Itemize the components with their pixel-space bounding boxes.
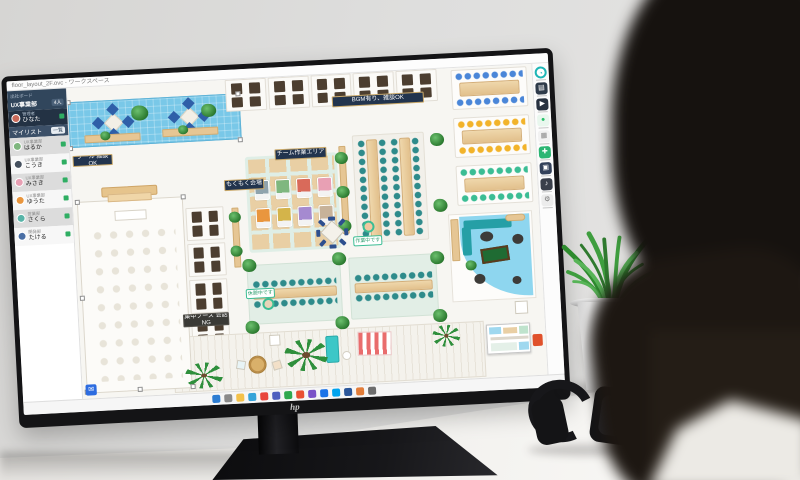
plant-icon <box>433 199 448 213</box>
avatar <box>16 214 25 223</box>
icon-caption <box>542 191 552 193</box>
beanbag <box>474 274 486 285</box>
chair <box>211 261 221 273</box>
selection-handle[interactable] <box>181 194 186 199</box>
status-icon <box>62 159 67 164</box>
plant-icon <box>430 133 445 147</box>
avatar-card[interactable] <box>276 207 292 228</box>
photo-scene: floor_layout_2F.ovc - ワークスペース 出社ボード UX事業… <box>0 0 800 480</box>
pool-area[interactable] <box>68 93 242 148</box>
palm-plant-icon <box>283 338 329 372</box>
chair <box>210 247 220 259</box>
plant-icon <box>131 105 149 121</box>
striped-mat <box>357 331 391 356</box>
chair <box>402 74 413 85</box>
layout-icon[interactable]: ▦ <box>538 130 551 143</box>
plant-icon <box>201 103 217 117</box>
chair <box>317 92 328 103</box>
plugin-icon[interactable]: ✚ <box>539 146 552 159</box>
status-icon <box>64 213 69 218</box>
status-available-icon[interactable]: ● <box>537 114 550 127</box>
sofa <box>462 227 472 255</box>
mylist-label: マイリスト <box>12 126 42 137</box>
announcement-icon[interactable]: ▤ <box>535 82 548 95</box>
icon-caption <box>539 127 549 129</box>
monitor: floor_layout_2F.ovc - ワークスペース 出社ボード UX事業… <box>1 48 571 428</box>
selection-handle[interactable] <box>235 91 240 96</box>
chrome-icon[interactable] <box>260 392 268 400</box>
patio-chair <box>272 360 283 371</box>
chair <box>209 225 219 237</box>
minimap-block <box>519 341 529 350</box>
desk-bank <box>225 78 267 112</box>
screen: floor_layout_2F.ovc - ワークスペース 出社ボード UX事業… <box>6 53 565 415</box>
planter-bench <box>162 126 218 137</box>
plant-pot <box>572 302 648 390</box>
podium <box>114 209 146 221</box>
chair <box>274 94 285 105</box>
chair <box>249 82 260 93</box>
edge-icon[interactable] <box>248 393 256 401</box>
teams-icon[interactable] <box>272 392 280 400</box>
minimap-block <box>519 325 528 333</box>
music-icon[interactable]: ♪ <box>540 178 553 191</box>
selection-handle[interactable] <box>75 200 80 205</box>
chair <box>249 96 260 107</box>
status-icon <box>59 114 64 119</box>
avatar <box>14 178 23 187</box>
user-name-tag: 休憩中です <box>246 288 275 300</box>
chair <box>195 284 205 296</box>
selection-handle[interactable] <box>238 137 243 142</box>
avatar-card[interactable] <box>275 179 291 200</box>
pinned-user-name: ひなた <box>22 116 57 124</box>
chair <box>232 97 243 108</box>
selection-handle[interactable] <box>191 384 196 389</box>
lounge-area[interactable] <box>448 210 536 302</box>
chair <box>212 283 222 295</box>
audience-seats <box>91 226 183 382</box>
word-icon[interactable] <box>344 388 352 396</box>
icon-caption <box>539 143 549 145</box>
powerpoint-icon[interactable] <box>296 390 304 398</box>
status-icon <box>61 141 66 146</box>
sidebar-subtitle: UX事業部 <box>10 99 37 109</box>
desk-bank <box>185 206 225 241</box>
search-icon[interactable] <box>224 394 232 402</box>
chair <box>292 93 303 104</box>
calendar-icon[interactable]: ▣ <box>539 162 552 175</box>
chair <box>334 78 345 89</box>
table-group-bottomright[interactable] <box>348 253 439 320</box>
planter-bench <box>84 132 140 143</box>
member-count-badge: 4人 <box>52 98 64 106</box>
list-all-button[interactable]: 一覧 <box>51 126 65 134</box>
sidebar-user-list: UX事業部はるかUX事業部こうきUX事業部みさきUX事業部ゆうた営業部さくら開発… <box>9 135 74 246</box>
center-diamond-table[interactable] <box>320 220 345 245</box>
avatar-card[interactable] <box>297 206 313 227</box>
photos-icon[interactable] <box>356 387 364 395</box>
desk-bank <box>267 76 309 110</box>
focus-sign[interactable]: 集中ブース 会話NG <box>183 312 230 327</box>
meeting-table-blue[interactable] <box>450 66 528 110</box>
status-icon <box>65 231 70 236</box>
icon-caption <box>543 207 553 209</box>
chair <box>196 298 206 310</box>
mid-sign[interactable]: もくもく会場 <box>224 178 265 191</box>
user-row[interactable]: 開発部たける <box>14 225 74 246</box>
pool-sign[interactable]: プール 雑談OK <box>72 154 113 167</box>
icon-caption <box>537 95 547 97</box>
settings-icon[interactable]: ⚙ <box>541 194 554 207</box>
plant-icon <box>430 251 445 265</box>
auditorium[interactable] <box>77 196 193 393</box>
minimap-block <box>490 335 528 340</box>
chair <box>359 76 370 87</box>
chair <box>316 79 327 90</box>
avatar-card[interactable] <box>317 177 333 198</box>
chair <box>194 262 204 274</box>
avatar <box>15 196 24 205</box>
hp-logo: hp <box>290 402 300 412</box>
minimap-block <box>491 342 517 351</box>
side-table <box>342 351 351 360</box>
icon-caption <box>536 79 546 81</box>
stage <box>107 192 151 202</box>
mail-icon[interactable] <box>320 389 328 397</box>
desk-bank <box>189 279 229 314</box>
minimap[interactable] <box>486 322 532 354</box>
selection-handle[interactable] <box>67 100 71 105</box>
excel-icon[interactable] <box>284 391 292 399</box>
chair <box>291 80 302 91</box>
status-icon <box>63 177 68 182</box>
enter-room-icon[interactable]: ▶ <box>536 98 549 111</box>
chair <box>192 211 202 223</box>
icon-caption <box>540 159 550 161</box>
side-table <box>515 300 529 314</box>
minimap-block <box>489 327 501 335</box>
chair <box>377 75 388 86</box>
chair <box>420 73 431 84</box>
start-icon[interactable] <box>212 395 220 403</box>
chair <box>213 297 223 309</box>
meeting-table-yellow[interactable] <box>453 114 531 158</box>
user-name-tag: 作業中です <box>353 235 382 247</box>
avatar-card[interactable] <box>296 178 312 199</box>
plant-icon <box>230 245 243 257</box>
status-icon <box>63 195 68 200</box>
chair <box>193 248 203 260</box>
minimap-block <box>503 327 517 334</box>
plant-icon <box>332 252 347 266</box>
planter-bench <box>505 213 525 221</box>
patio-chair <box>236 360 246 370</box>
chat-widget-icon[interactable]: ✉ <box>85 384 97 396</box>
round-table <box>248 355 267 374</box>
explorer-icon[interactable] <box>236 393 244 401</box>
side-table <box>269 334 281 346</box>
avatar <box>11 114 20 123</box>
plant-icon <box>433 309 448 323</box>
store-icon[interactable] <box>332 388 340 396</box>
icon-caption <box>541 175 551 177</box>
avatar-card[interactable] <box>255 208 271 229</box>
plant-icon <box>229 211 242 223</box>
selection-handle[interactable] <box>138 387 143 392</box>
settings-icon[interactable] <box>368 386 376 394</box>
chair <box>192 225 202 237</box>
slack-icon[interactable] <box>308 390 316 398</box>
floorplan-canvas[interactable]: プール 雑談OK BGM有り、雑談OK <box>67 64 548 399</box>
headphones-earcup <box>588 385 641 447</box>
meeting-table-green[interactable] <box>455 162 533 206</box>
alert-icon[interactable] <box>532 334 543 347</box>
chair <box>208 211 218 223</box>
avatar <box>13 142 22 151</box>
desk-bank <box>187 242 227 277</box>
avatar <box>17 232 26 241</box>
chair <box>274 81 285 92</box>
headphones-shadow <box>528 444 658 456</box>
selection-handle[interactable] <box>80 296 85 301</box>
icon-caption <box>538 111 548 113</box>
avatar <box>14 160 23 169</box>
space-logo-icon[interactable]: ◔ <box>534 66 547 79</box>
